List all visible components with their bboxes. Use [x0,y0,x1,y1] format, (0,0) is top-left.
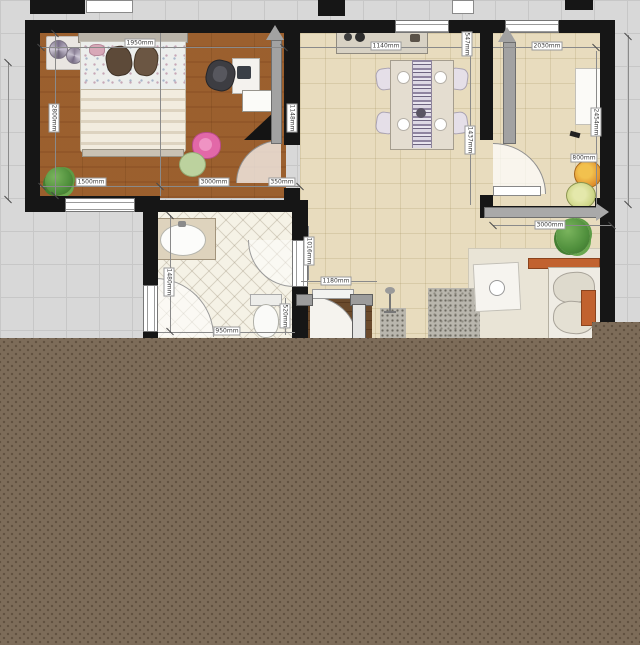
bed-foot-rail [82,149,184,157]
floor-plan-canvas[interactable]: 1950mm2800mm1500mm3000mm350mm1148mm1140m… [0,0,640,645]
wall-stub-top [318,0,345,16]
sink-faucet [178,221,186,227]
wall-bathroom-right-lower[interactable] [292,285,308,338]
dimension-label[interactable]: 1148mm [287,104,298,133]
balcony-stub [452,0,474,14]
dimension-label[interactable]: 2454mm [591,108,602,137]
green-pouf[interactable] [179,152,206,177]
table-centerpiece [416,108,426,118]
floor-lamp-base [384,311,396,313]
pink-chair-cushion [199,138,212,151]
plate [397,118,410,131]
entry-door-sill [312,289,354,299]
dimension-label[interactable]: 1180mm [321,277,352,286]
kitchen-door-leaf[interactable] [493,186,541,196]
bed-small-pillow[interactable] [89,44,105,56]
wall-stub-top [565,0,593,10]
bedroom-plant[interactable] [45,167,73,195]
wall-bedroom-right-lower[interactable] [284,188,300,212]
table-runner [412,60,432,148]
sideboard-item [410,34,420,42]
dimension-label[interactable]: 950mm [213,327,240,336]
wall-top-bedroom[interactable] [25,20,302,33]
bathroom-window[interactable] [143,285,158,332]
dimension-label[interactable]: 2800mm [49,104,60,133]
plate [434,118,447,131]
dimension-label[interactable]: 800mm [570,154,597,163]
floor-lamp-shade [385,287,395,294]
dimension-label[interactable]: 1950mm [125,39,156,48]
sofa-throw [581,290,596,326]
plate [397,71,410,84]
dimension-line [628,35,629,205]
bed-duvet[interactable] [80,89,186,153]
dimension-line [40,47,284,48]
fruit-plate[interactable] [566,182,596,209]
sliding-door-arrow [596,203,609,221]
covered-region [0,338,640,645]
dining-window[interactable] [395,20,449,33]
wall-right-exterior[interactable] [600,20,615,322]
dimension-label[interactable]: 1500mm [76,178,107,187]
floor-lamp-pole[interactable] [389,291,391,313]
dimension-label[interactable]: 1437mm [465,126,476,155]
sliding-door[interactable] [484,207,598,218]
dimension-label[interactable]: 350mm [268,178,295,187]
wall-left-bedroom[interactable] [25,20,40,210]
entry-door-post [296,294,313,306]
kitchen-entry-arrow-head [498,27,516,42]
bedroom-window-arrow-head [266,25,284,40]
entry-wall-cap [352,304,366,340]
bathroom-sink[interactable] [160,224,206,256]
dimension-label[interactable]: 520mm [280,303,291,328]
wall-stub-top [30,0,85,14]
balcony-stub [86,0,133,13]
dimension-label[interactable]: 547mm [462,31,473,56]
dimension-label[interactable]: 3000mm [535,221,566,230]
dimension-label[interactable]: 1140mm [371,42,402,51]
dimension-label[interactable]: 2030mm [532,42,563,51]
wall-top-dining-left[interactable] [302,20,395,33]
kitchen-entry-arrow [503,42,516,144]
dimension-label[interactable]: 1016mm [304,237,315,266]
plate [434,71,447,84]
shag-rug[interactable] [428,288,480,338]
dimension-line [8,62,9,200]
wall-top-dining-right[interactable] [447,20,505,33]
bedroom-window[interactable] [65,198,135,212]
dimension-line [160,33,161,196]
wall-dining-kitchen-divider[interactable] [480,33,493,140]
bedroom-window-arrow [271,40,282,144]
sideboard-item [344,33,352,41]
laptop[interactable] [237,66,251,79]
coffee-table-decor [489,280,505,296]
sideboard-item [355,32,365,42]
dimension-label[interactable]: 3000mm [199,178,230,187]
dimension-label[interactable]: 1480mm [164,268,175,297]
